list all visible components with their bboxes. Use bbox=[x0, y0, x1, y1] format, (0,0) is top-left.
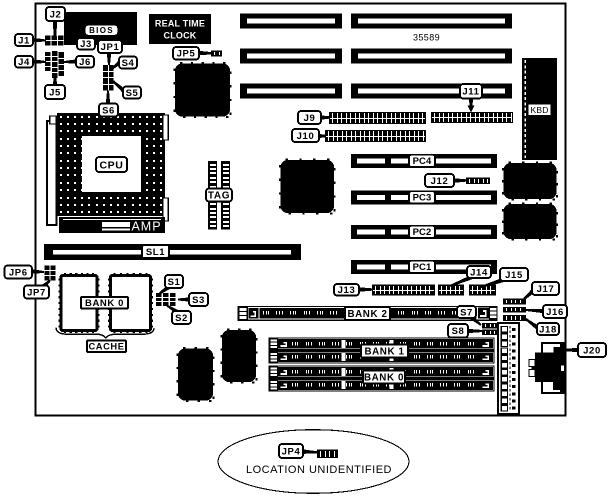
svg-text:J11: J11 bbox=[462, 87, 479, 98]
svg-text:REAL TIME: REAL TIME bbox=[155, 19, 205, 29]
svg-text:J6: J6 bbox=[79, 57, 91, 68]
svg-text:CPU: CPU bbox=[100, 159, 124, 171]
svg-text:J5: J5 bbox=[49, 87, 61, 98]
svg-text:J17: J17 bbox=[537, 284, 555, 295]
svg-text:35589: 35589 bbox=[413, 33, 440, 43]
svg-text:JP6: JP6 bbox=[9, 267, 28, 278]
svg-text:CLOCK: CLOCK bbox=[164, 31, 197, 41]
svg-text:PC4: PC4 bbox=[413, 156, 432, 167]
svg-text:BANK 1: BANK 1 bbox=[364, 347, 404, 358]
svg-text:TAG: TAG bbox=[208, 191, 230, 202]
svg-text:J20: J20 bbox=[583, 345, 601, 356]
svg-text:BANK 0: BANK 0 bbox=[85, 298, 124, 309]
svg-text:PC2: PC2 bbox=[413, 227, 432, 238]
svg-text:S1: S1 bbox=[168, 277, 181, 288]
svg-text:PC3: PC3 bbox=[413, 193, 432, 204]
svg-text:JP5: JP5 bbox=[177, 49, 196, 60]
svg-text:J12: J12 bbox=[431, 176, 449, 187]
svg-text:AMP: AMP bbox=[131, 219, 161, 233]
svg-text:S2: S2 bbox=[175, 313, 188, 324]
svg-text:J9: J9 bbox=[304, 113, 316, 124]
svg-text:J16: J16 bbox=[546, 307, 564, 318]
svg-text:JP4: JP4 bbox=[282, 446, 301, 457]
svg-text:CACHE: CACHE bbox=[88, 342, 124, 352]
svg-text:S3: S3 bbox=[192, 295, 205, 306]
svg-text:JP1: JP1 bbox=[101, 42, 120, 53]
svg-text:J2: J2 bbox=[50, 9, 62, 20]
svg-text:J15: J15 bbox=[505, 270, 523, 281]
svg-text:J1: J1 bbox=[18, 35, 30, 46]
svg-text:J14: J14 bbox=[470, 267, 488, 278]
svg-text:BANK 2: BANK 2 bbox=[347, 309, 387, 320]
svg-text:S5: S5 bbox=[126, 88, 139, 99]
svg-text:J18: J18 bbox=[539, 324, 557, 335]
svg-text:J13: J13 bbox=[338, 285, 356, 296]
svg-text:KBD: KBD bbox=[530, 105, 548, 115]
svg-text:BIOS: BIOS bbox=[89, 26, 114, 35]
svg-text:J10: J10 bbox=[297, 131, 315, 142]
svg-text:S6: S6 bbox=[102, 105, 115, 116]
svg-text:SL1: SL1 bbox=[146, 247, 165, 258]
svg-text:BANK 0: BANK 0 bbox=[364, 373, 404, 384]
svg-text:J3: J3 bbox=[80, 39, 92, 50]
svg-text:LOCATION UNIDENTIFIED: LOCATION UNIDENTIFIED bbox=[246, 464, 392, 476]
svg-text:JP7: JP7 bbox=[27, 287, 46, 298]
svg-text:S4: S4 bbox=[122, 58, 135, 69]
svg-text:S7: S7 bbox=[460, 307, 473, 318]
svg-text:PC1: PC1 bbox=[413, 262, 432, 273]
svg-text:S8: S8 bbox=[452, 326, 465, 337]
svg-text:J4: J4 bbox=[18, 57, 30, 68]
